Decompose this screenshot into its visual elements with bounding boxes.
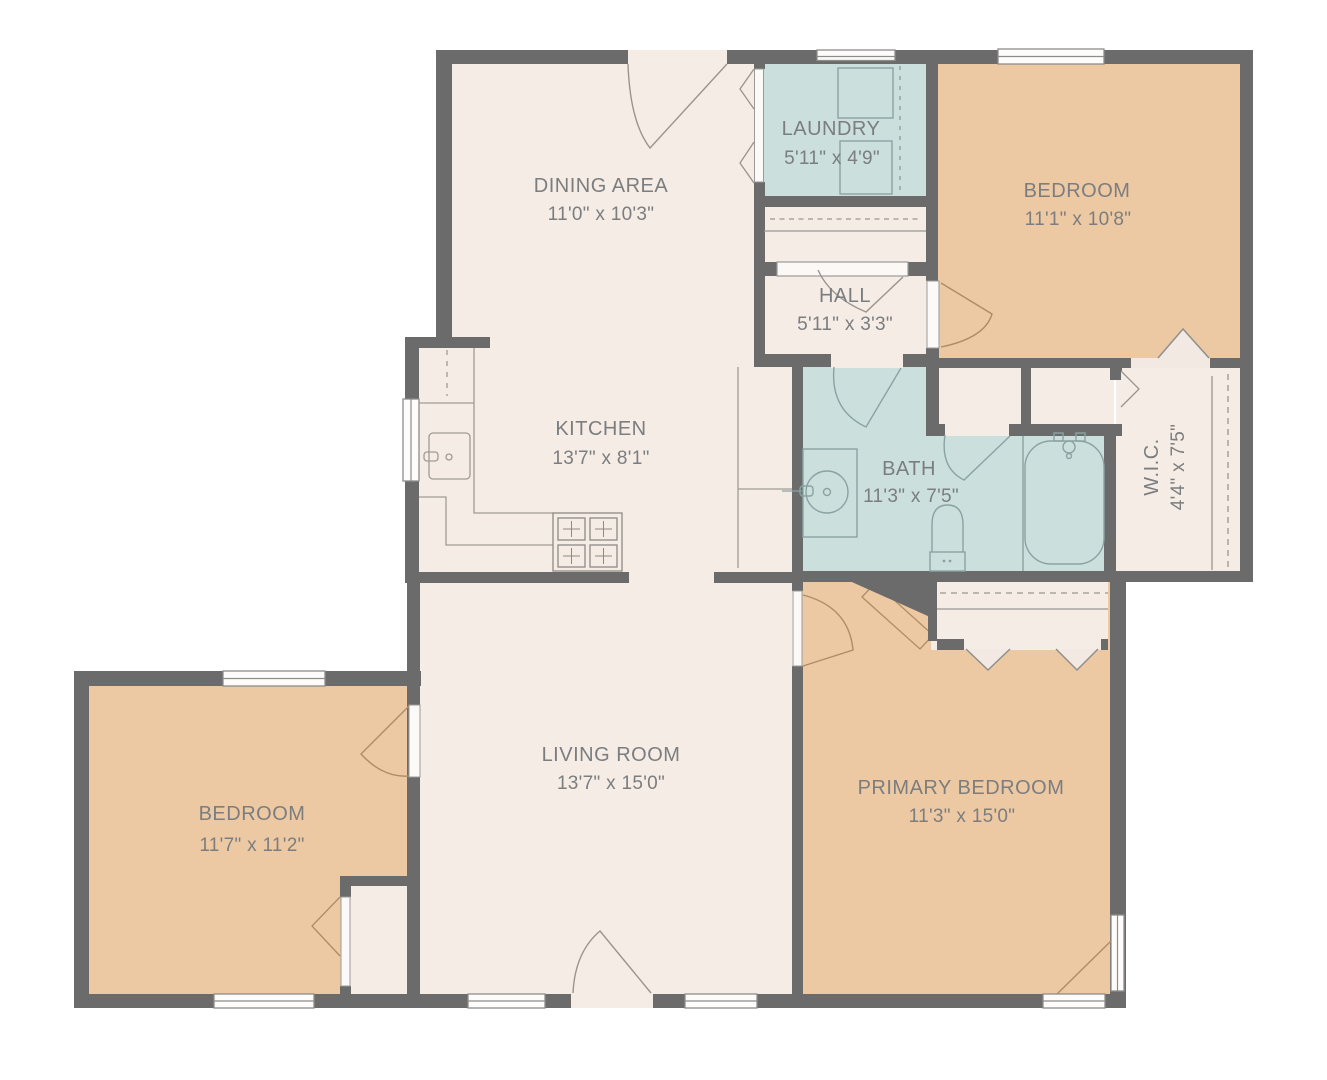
svg-text:PRIMARY BEDROOM: PRIMARY BEDROOM bbox=[858, 777, 1065, 799]
svg-text:LIVING ROOM: LIVING ROOM bbox=[542, 744, 681, 766]
svg-text:KITCHEN: KITCHEN bbox=[555, 418, 646, 440]
svg-text:5'11" x 3'3": 5'11" x 3'3" bbox=[797, 314, 893, 335]
svg-text:11'0" x 10'3": 11'0" x 10'3" bbox=[548, 204, 655, 225]
svg-text:11'7" x 11'2": 11'7" x 11'2" bbox=[199, 835, 304, 856]
svg-text:11'1" x 10'8": 11'1" x 10'8" bbox=[1025, 209, 1132, 230]
svg-text:13'7" x 8'1": 13'7" x 8'1" bbox=[552, 448, 649, 469]
svg-text:BEDROOM: BEDROOM bbox=[199, 803, 306, 825]
svg-text:HALL: HALL bbox=[819, 285, 871, 307]
svg-text:LAUNDRY: LAUNDRY bbox=[782, 118, 881, 140]
svg-text:11'3" x 15'0": 11'3" x 15'0" bbox=[909, 806, 1016, 827]
svg-text:11'3" x 7'5": 11'3" x 7'5" bbox=[863, 486, 959, 507]
svg-text:DINING AREA: DINING AREA bbox=[534, 175, 669, 197]
svg-text:4'4" x 7'5": 4'4" x 7'5" bbox=[1168, 424, 1189, 510]
svg-text:BEDROOM: BEDROOM bbox=[1024, 180, 1131, 202]
svg-text:W.I.C.: W.I.C. bbox=[1141, 438, 1163, 495]
svg-text:BATH: BATH bbox=[882, 458, 936, 480]
svg-text:5'11" x 4'9": 5'11" x 4'9" bbox=[784, 148, 880, 169]
svg-text:13'7" x 15'0": 13'7" x 15'0" bbox=[557, 773, 665, 794]
